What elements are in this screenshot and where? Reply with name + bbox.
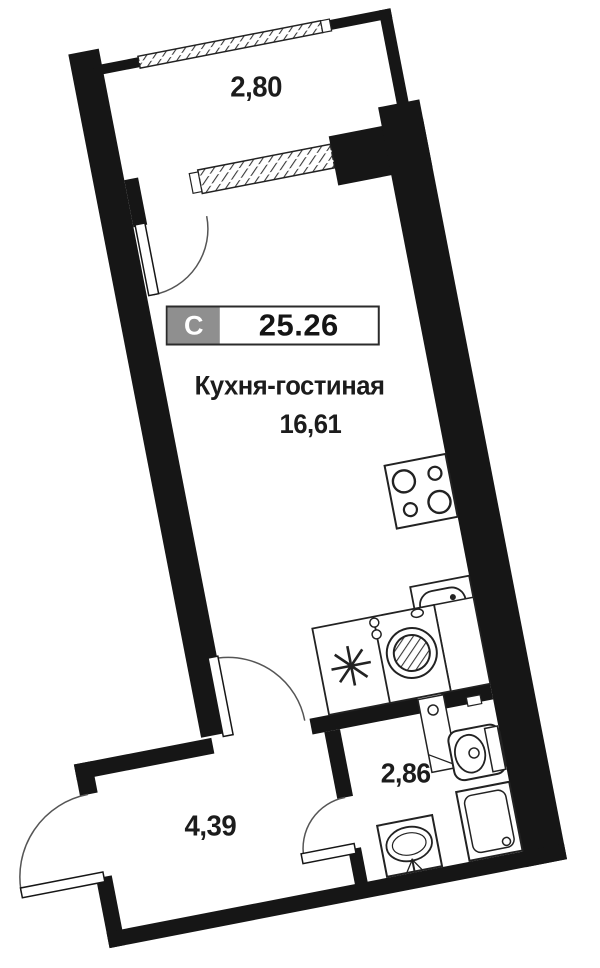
balcony-door-window-block [198,144,335,193]
entrance-door-leaf [20,872,104,898]
windows [138,19,357,201]
washbasin-icon [377,815,442,878]
living-room-area-label: 16,61 [234,409,386,440]
unit-area-badge: С 25.26 [166,306,380,346]
bathroom-area-label: 2,86 [349,757,463,789]
floor-plan-drawing [0,0,578,968]
window-end-cap [321,19,332,32]
floor-plan: 2,80 С 25.26 Кухня-гостиная 16,61 4,39 2… [0,1,587,968]
pipe-detail [466,695,481,707]
knob-detail [371,629,382,640]
unit-type-letter: С [168,308,220,344]
living-room-name-label: Кухня-гостиная [157,370,423,401]
unit-total-area: 25.26 [220,308,378,344]
knob-detail [369,617,380,628]
hallway-area-label: 4,39 [153,811,267,844]
balcony-dimension-label: 2,80 [199,71,313,104]
cooktop-icon [385,454,458,529]
hallway-top-wall [74,738,214,780]
floor-plan-page: 2,80 С 25.26 Кухня-гостиная 16,61 4,39 2… [0,0,600,968]
balcony-window-sill-line [139,27,322,62]
bottom-wall [107,843,567,948]
bathroom-door-leaf [301,844,356,864]
